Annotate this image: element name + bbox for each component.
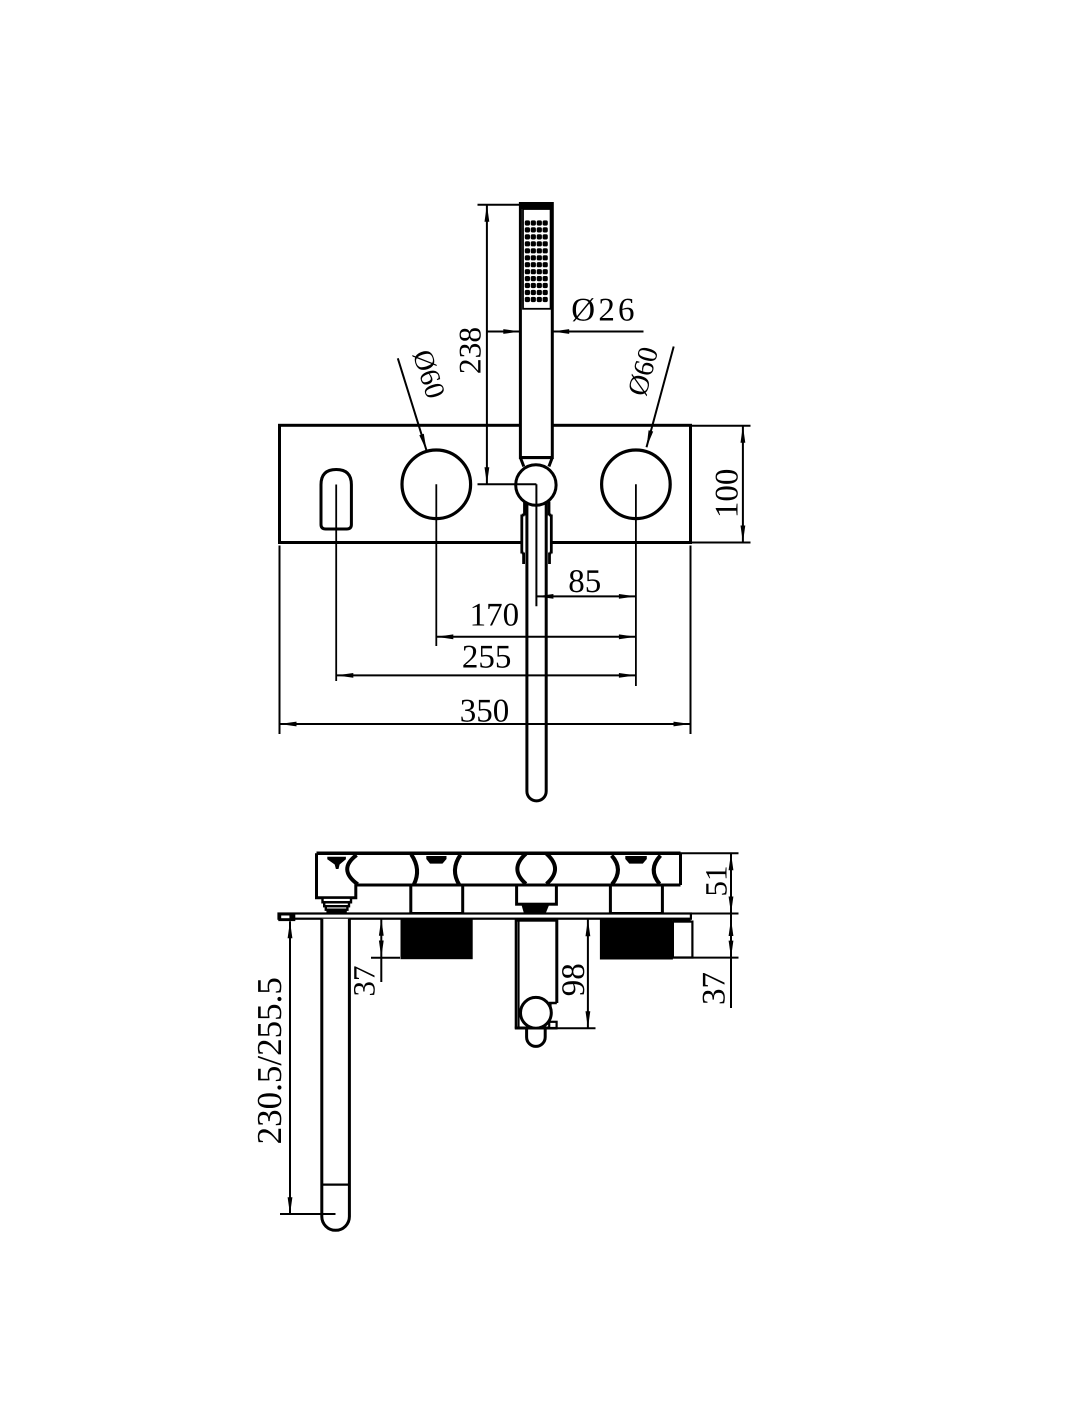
svg-text:170: 170 — [470, 598, 520, 634]
svg-text:238: 238 — [453, 327, 488, 374]
svg-text:255: 255 — [462, 640, 512, 676]
svg-text:98: 98 — [556, 963, 592, 996]
svg-text:230.5/255.5: 230.5/255.5 — [250, 977, 289, 1144]
svg-text:350: 350 — [460, 694, 510, 730]
svg-text:51: 51 — [699, 866, 734, 897]
svg-text:Ø26: Ø26 — [571, 293, 637, 329]
svg-text:100: 100 — [710, 469, 746, 519]
svg-text:37: 37 — [697, 972, 733, 1005]
svg-text:37: 37 — [347, 966, 382, 997]
svg-text:85: 85 — [568, 564, 601, 600]
